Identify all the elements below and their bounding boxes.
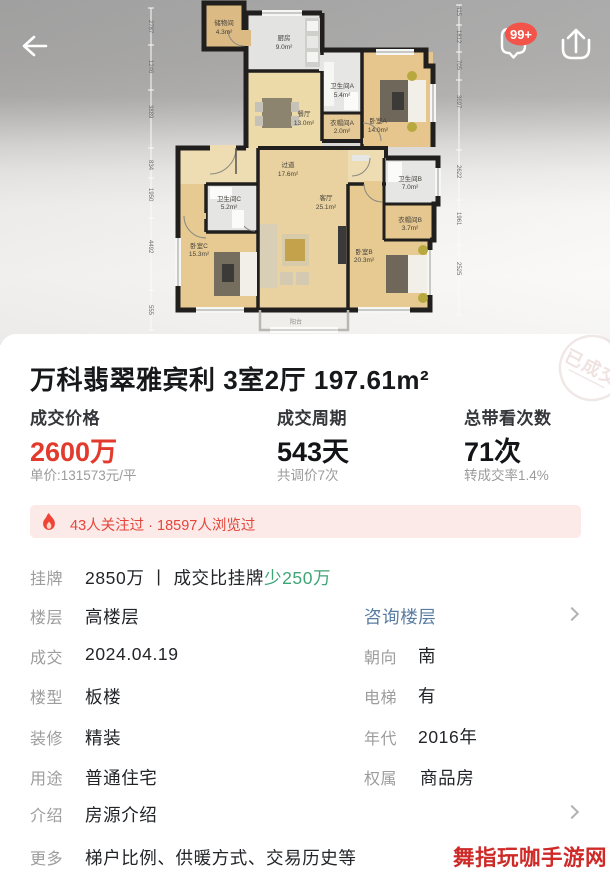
- svg-text:1961: 1961: [455, 212, 461, 226]
- svg-text:3889: 3889: [147, 105, 153, 119]
- svg-text:4492: 4492: [147, 240, 153, 254]
- svg-text:2525: 2525: [455, 262, 461, 276]
- svg-text:9.0m²: 9.0m²: [276, 44, 293, 51]
- svg-text:卫生间A: 卫生间A: [330, 81, 355, 90]
- svg-text:1950: 1950: [147, 188, 153, 202]
- svg-text:衣帽间A: 衣帽间A: [330, 118, 355, 127]
- svg-text:储物间: 储物间: [214, 18, 234, 27]
- svg-text:卧室B: 卧室B: [355, 247, 372, 256]
- svg-text:14.0m²: 14.0m²: [368, 127, 389, 134]
- svg-text:99+: 99+: [510, 27, 532, 42]
- svg-text:25.1m²: 25.1m²: [316, 204, 337, 211]
- svg-text:7.0m²: 7.0m²: [402, 184, 419, 191]
- svg-text:834: 834: [147, 160, 153, 171]
- svg-text:3697: 3697: [455, 95, 461, 109]
- svg-text:4.3m²: 4.3m²: [216, 29, 233, 36]
- svg-text:415: 415: [455, 6, 461, 17]
- svg-text:2787: 2787: [147, 20, 153, 34]
- svg-text:17.6m²: 17.6m²: [278, 171, 299, 178]
- svg-text:1246: 1246: [147, 60, 153, 74]
- svg-text:卫生间B: 卫生间B: [398, 174, 422, 183]
- svg-text:衣帽间B: 衣帽间B: [398, 215, 422, 224]
- svg-text:卧室C: 卧室C: [190, 241, 208, 250]
- svg-text:客厅: 客厅: [320, 193, 334, 202]
- svg-text:3.7m²: 3.7m²: [402, 225, 419, 232]
- svg-text:5.2m²: 5.2m²: [221, 204, 238, 211]
- svg-text:20.3m²: 20.3m²: [354, 257, 375, 264]
- svg-text:阳台: 阳台: [290, 318, 302, 326]
- svg-text:5.4m²: 5.4m²: [334, 92, 351, 99]
- svg-text:厨房: 厨房: [278, 33, 291, 42]
- svg-text:2622: 2622: [455, 165, 461, 179]
- svg-text:13.0m²: 13.0m²: [294, 120, 315, 127]
- svg-text:15.3m²: 15.3m²: [189, 251, 210, 258]
- svg-text:705: 705: [455, 60, 461, 71]
- svg-text:555: 555: [147, 305, 153, 316]
- svg-text:餐厅: 餐厅: [298, 109, 312, 118]
- svg-text:卧室A: 卧室A: [369, 116, 387, 125]
- svg-text:卫生间C: 卫生间C: [217, 194, 242, 203]
- svg-text:过道: 过道: [282, 160, 296, 169]
- svg-text:2.0m²: 2.0m²: [334, 128, 351, 135]
- svg-text:已成交: 已成交: [561, 345, 610, 390]
- svg-text:1812: 1812: [455, 30, 461, 44]
